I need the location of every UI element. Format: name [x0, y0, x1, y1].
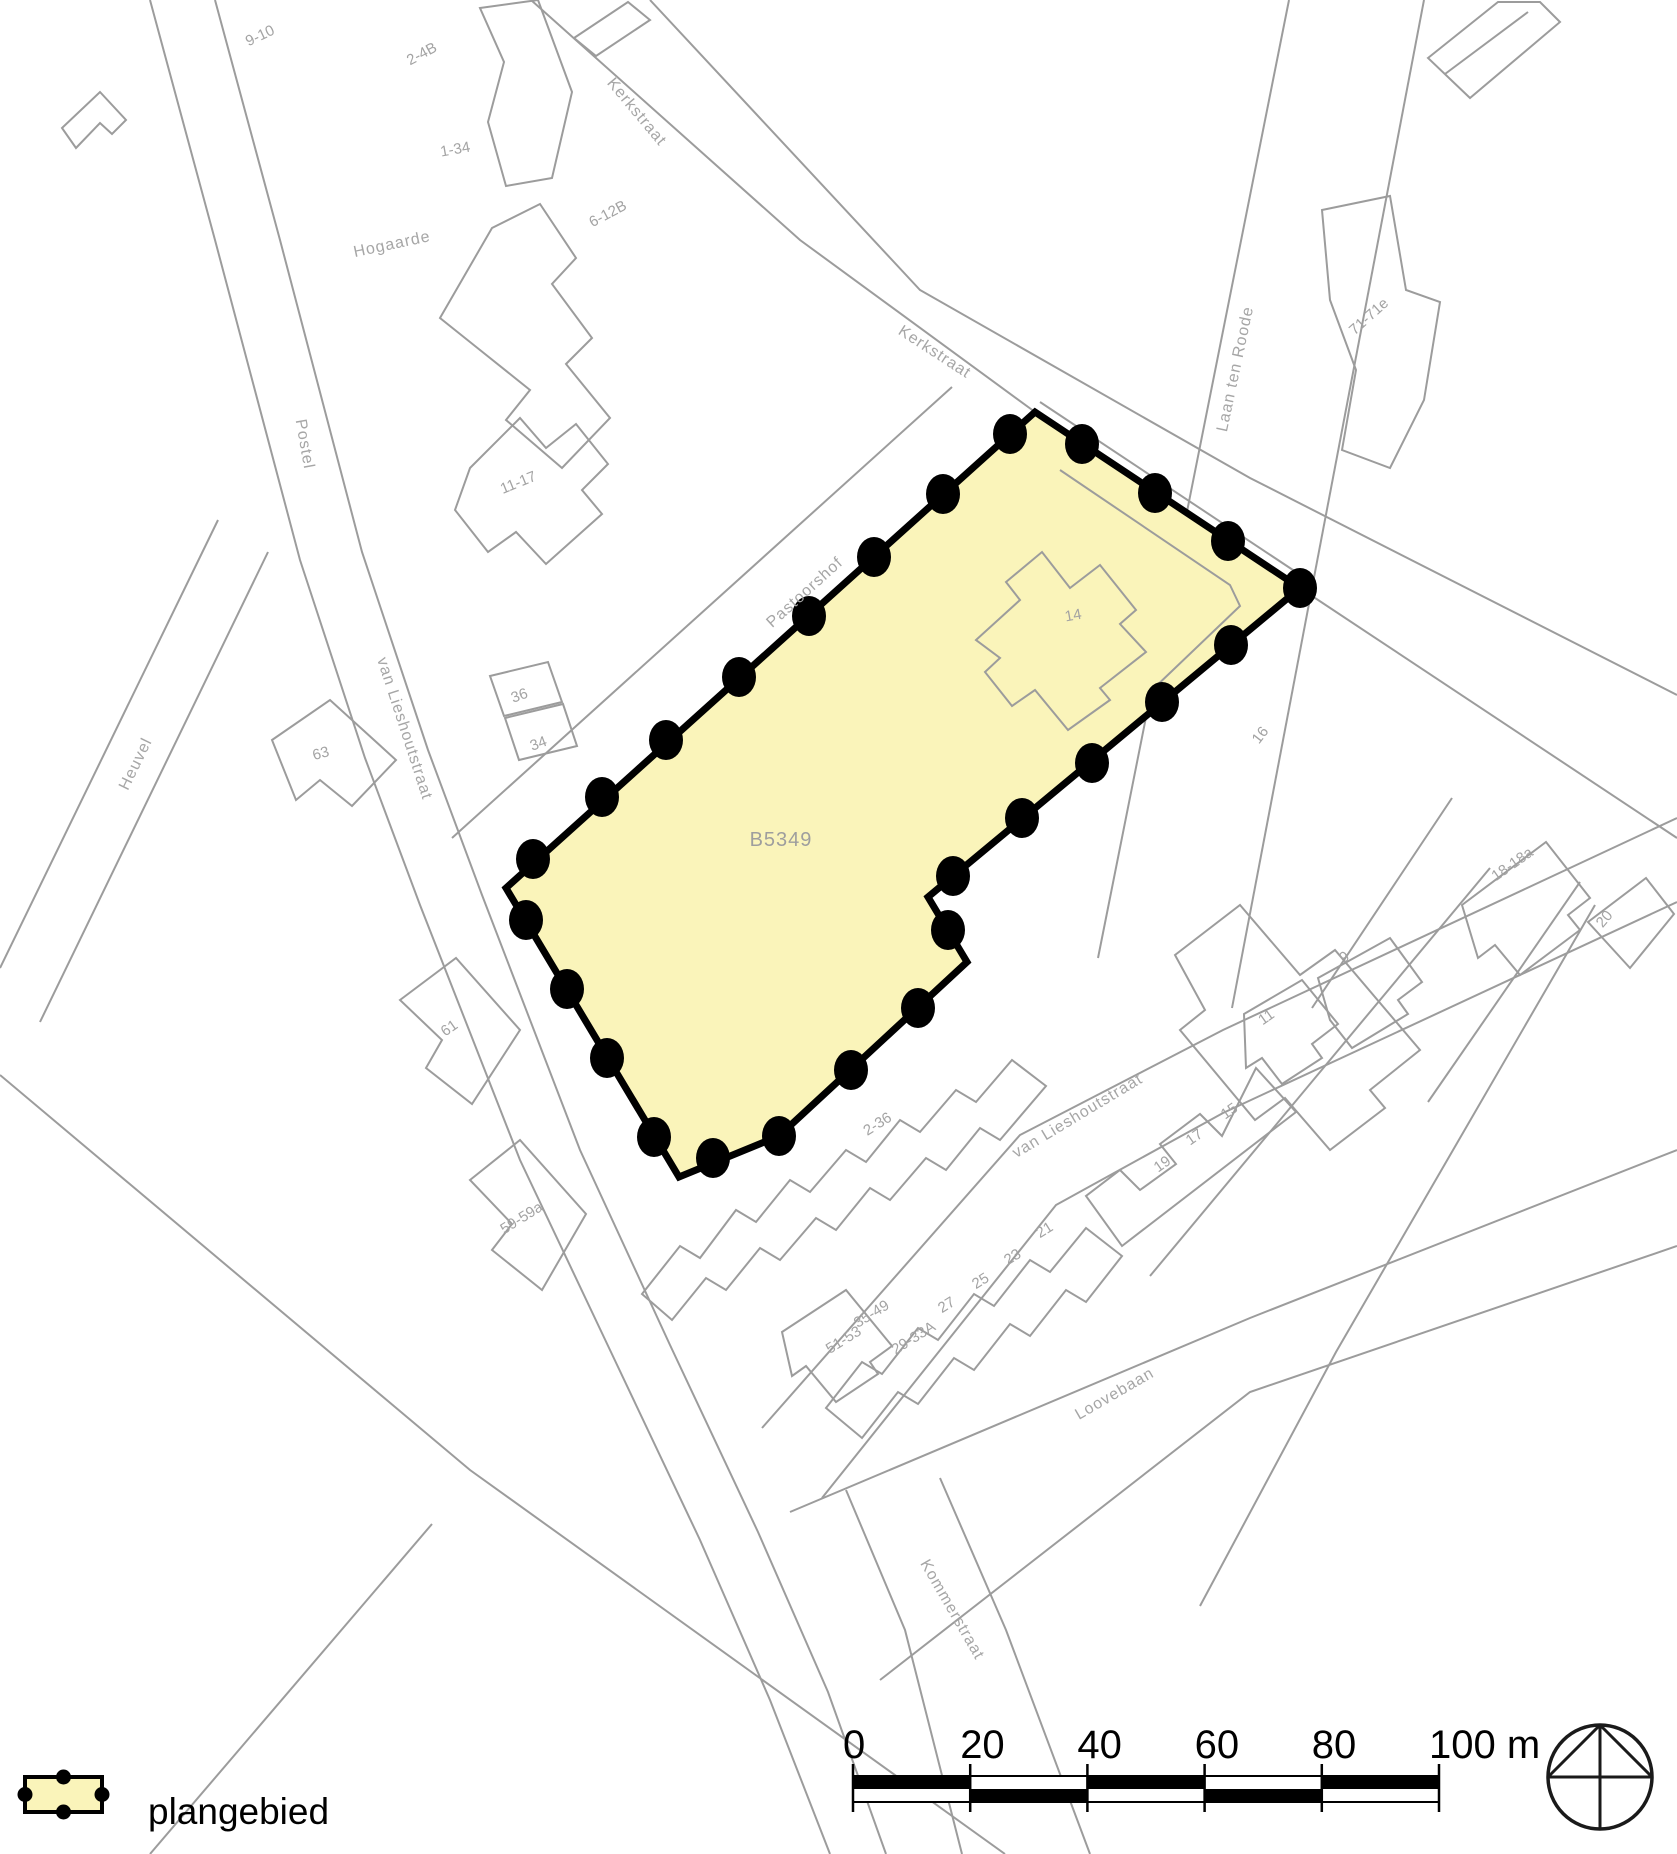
- parcel-number-label: 9-10: [243, 22, 277, 50]
- road-line: [1200, 905, 1595, 1606]
- parcel-number-label: 36: [509, 685, 530, 707]
- boundary-vertex-dot: [1214, 625, 1248, 665]
- scale-tick-label: 0: [843, 1723, 865, 1767]
- parcel-number-label: 16: [1249, 723, 1273, 747]
- building-topleft: [62, 92, 126, 148]
- boundary-vertex-dot: [509, 900, 543, 940]
- parcel-number-label: 59-59a: [497, 1198, 546, 1238]
- boundary-vertex-dot: [762, 1116, 796, 1156]
- parcel-number-label: 34: [528, 733, 549, 755]
- boundary-vertex-dot: [1138, 473, 1172, 513]
- scale-bar-segment: [970, 1776, 1087, 1789]
- legend-swatch-dot: [95, 1787, 110, 1802]
- boundary-vertex-dot: [936, 856, 970, 896]
- boundary-vertex-dot: [931, 910, 965, 950]
- street-label: Postel: [292, 418, 318, 471]
- building-9: [1318, 938, 1422, 1048]
- building-11-17: [455, 418, 608, 564]
- road-line: [40, 552, 268, 1022]
- boundary-vertex-dot: [649, 720, 683, 760]
- boundary-vertex-dot: [1211, 521, 1245, 561]
- building-9-10: [480, 0, 572, 186]
- scale-tick-label: 100 m: [1429, 1723, 1540, 1767]
- parcel-number-label: 14: [1064, 606, 1083, 626]
- parcel-number-label: 17: [1183, 1126, 1206, 1149]
- street-label: Hogaarde: [352, 228, 432, 261]
- legend-label: plangebied: [148, 1791, 329, 1832]
- street-label: van Lieshoutstraat: [1010, 1071, 1146, 1162]
- boundary-vertex-dot: [1075, 743, 1109, 783]
- boundary-vertex-dot: [516, 839, 550, 879]
- parcel-number-label: 51-53: [823, 1323, 865, 1358]
- street-label: Loovebaan: [1072, 1365, 1157, 1424]
- parcel-36: [490, 662, 562, 716]
- parcel-number-label: 2-36: [860, 1109, 894, 1139]
- boundary-vertex-dot: [834, 1050, 868, 1090]
- map-canvas: KerkstraatKerkstraatLaan ten RoodePostel…: [0, 0, 1677, 1854]
- parcel-number-label: 11-17: [498, 468, 539, 498]
- parcel-number-label: 11: [1255, 1006, 1278, 1029]
- scale-bar-segment: [853, 1789, 970, 1802]
- scale-tick-label: 40: [1077, 1723, 1122, 1767]
- scale-tick-label: 60: [1195, 1723, 1240, 1767]
- scale-bar-segment: [1087, 1776, 1204, 1789]
- scale-bar: 020406080100 m: [843, 1723, 1540, 1812]
- legend-swatch-dot: [56, 1770, 71, 1785]
- road-line: [1300, 588, 1677, 838]
- boundary-vertex-dot: [696, 1138, 730, 1178]
- boundary-vertex-dot: [1145, 682, 1179, 722]
- scale-bar-segment: [1322, 1789, 1439, 1802]
- scale-tick-label: 20: [960, 1723, 1005, 1767]
- map-page: KerkstraatKerkstraatLaan ten RoodePostel…: [0, 0, 1677, 1854]
- parcel-number-label: 71-71e: [1346, 295, 1392, 339]
- street-label: Laan ten Roode: [1214, 305, 1257, 434]
- boundary-vertex-dot: [1065, 424, 1099, 464]
- parcel-number-label: 2-4B: [404, 39, 440, 69]
- building-topmid: [574, 2, 650, 56]
- building-topright: [1428, 2, 1560, 98]
- street-label: Kommerstraat: [916, 1557, 987, 1663]
- boundary-vertex-dot: [585, 777, 619, 817]
- boundary-vertex-dot: [1283, 568, 1317, 608]
- boundary-vertex-dot: [550, 969, 584, 1009]
- boundary-vertex-dot: [901, 988, 935, 1028]
- legend: plangebied: [18, 1770, 330, 1833]
- parcel-number-label: 61: [438, 1017, 461, 1040]
- building-1-34: [440, 204, 610, 468]
- scale-tick-label: 80: [1312, 1723, 1357, 1767]
- boundary-vertex-dot: [993, 414, 1027, 454]
- boundary-vertex-dot: [926, 474, 960, 514]
- scale-bar-segment: [853, 1776, 970, 1789]
- scale-bar-segment: [1322, 1776, 1439, 1789]
- parcel-number-label: 6-12B: [586, 197, 629, 231]
- parcel-number-label: 63: [311, 743, 332, 764]
- boundary-vertex-dot: [1005, 798, 1039, 838]
- north-compass-icon: [1548, 1725, 1652, 1829]
- scale-bar-segment: [1205, 1789, 1322, 1802]
- legend-swatch-dot: [18, 1787, 33, 1802]
- boundary-vertex-dot: [722, 657, 756, 697]
- legend-swatch-dot: [56, 1805, 71, 1820]
- street-label: Heuvel: [116, 735, 156, 793]
- parcel-number-label: 20: [1593, 907, 1617, 931]
- boundary-vertex-dot: [857, 537, 891, 577]
- road-line: [1150, 868, 1490, 1276]
- road-line: [1312, 798, 1452, 1008]
- scale-bar-segment: [970, 1789, 1087, 1802]
- plan-area-parcel-code: B5349: [750, 829, 813, 851]
- street-label: Kerkstraat: [603, 75, 669, 149]
- parcel-number-label: 27: [935, 1294, 958, 1317]
- building-71-71e: [1322, 196, 1440, 468]
- parcel-number-label: 18-18a: [1488, 844, 1537, 885]
- road-line: [0, 520, 218, 968]
- parcel-number-label: 1-34: [439, 139, 472, 161]
- scale-bar-segment: [1087, 1789, 1204, 1802]
- road-line: [1445, 12, 1528, 74]
- street-label: Kerkstraat: [895, 323, 974, 382]
- road-line: [1232, 0, 1424, 1008]
- parcel-number-label: 21: [1033, 1219, 1056, 1242]
- boundary-vertex-dot: [637, 1117, 671, 1157]
- boundary-vertex-dot: [590, 1038, 624, 1078]
- scale-bar-segment: [1205, 1776, 1322, 1789]
- parcel-number-label: 29-33A: [889, 1318, 939, 1358]
